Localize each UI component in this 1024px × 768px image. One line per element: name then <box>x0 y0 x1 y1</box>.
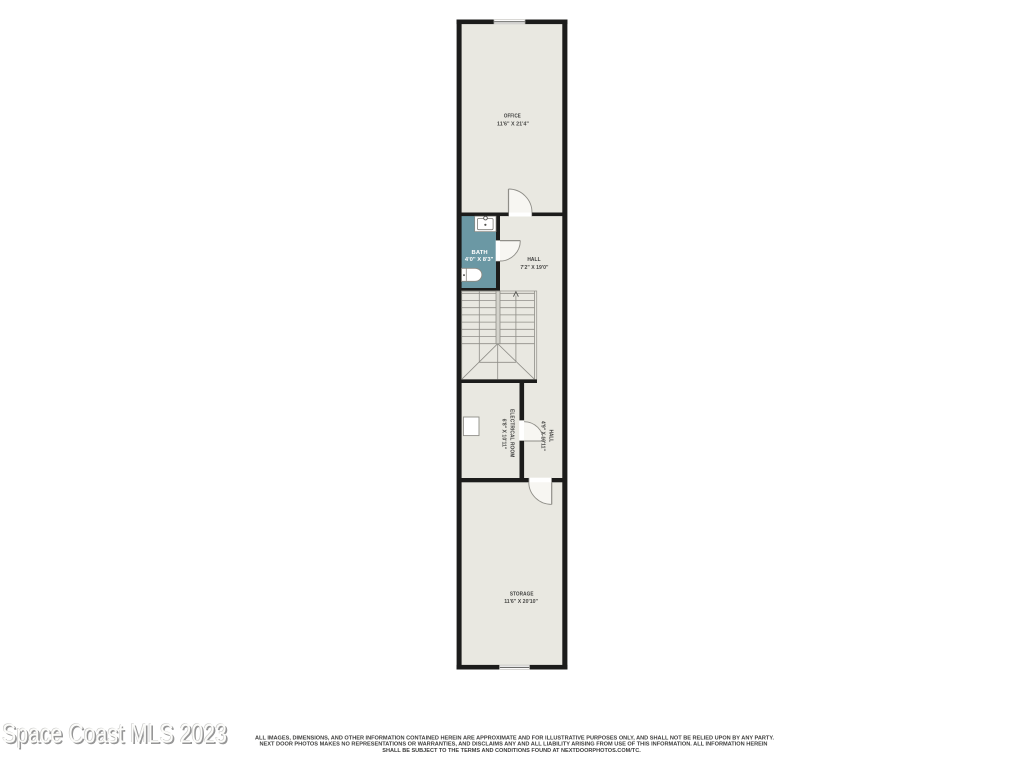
svg-text:Space Coast MLS 2023: Space Coast MLS 2023 <box>2 718 227 748</box>
svg-text:6'8" X 10'11": 6'8" X 10'11" <box>501 419 507 450</box>
svg-text:ELECTRICAL ROOM: ELECTRICAL ROOM <box>509 409 515 458</box>
svg-text:HALL: HALL <box>548 430 554 443</box>
svg-text:4'9" X 10'11": 4'9" X 10'11" <box>540 421 546 451</box>
svg-text:OFFICE: OFFICE <box>504 113 521 119</box>
svg-text:BATH: BATH <box>472 250 488 256</box>
svg-text:ALL IMAGES, DIMENSIONS, AND OT: ALL IMAGES, DIMENSIONS, AND OTHER INFORM… <box>255 735 774 741</box>
svg-text:STORAGE: STORAGE <box>510 592 534 598</box>
svg-text:NEXT DOOR PHOTOS MAKES NO REPR: NEXT DOOR PHOTOS MAKES NO REPRESENTATION… <box>260 742 768 748</box>
svg-text:11'6" X 20'10": 11'6" X 20'10" <box>504 599 538 605</box>
svg-text:HALL: HALL <box>527 257 541 263</box>
svg-text:11'6" X 21'4": 11'6" X 21'4" <box>497 121 529 127</box>
svg-text:7'2" X 19'0": 7'2" X 19'0" <box>520 265 549 271</box>
svg-text:SHALL BE SUBJECT TO THE TERMS: SHALL BE SUBJECT TO THE TERMS AND CONDIT… <box>382 748 641 754</box>
svg-text:4'0" X 8'3": 4'0" X 8'3" <box>465 257 494 263</box>
